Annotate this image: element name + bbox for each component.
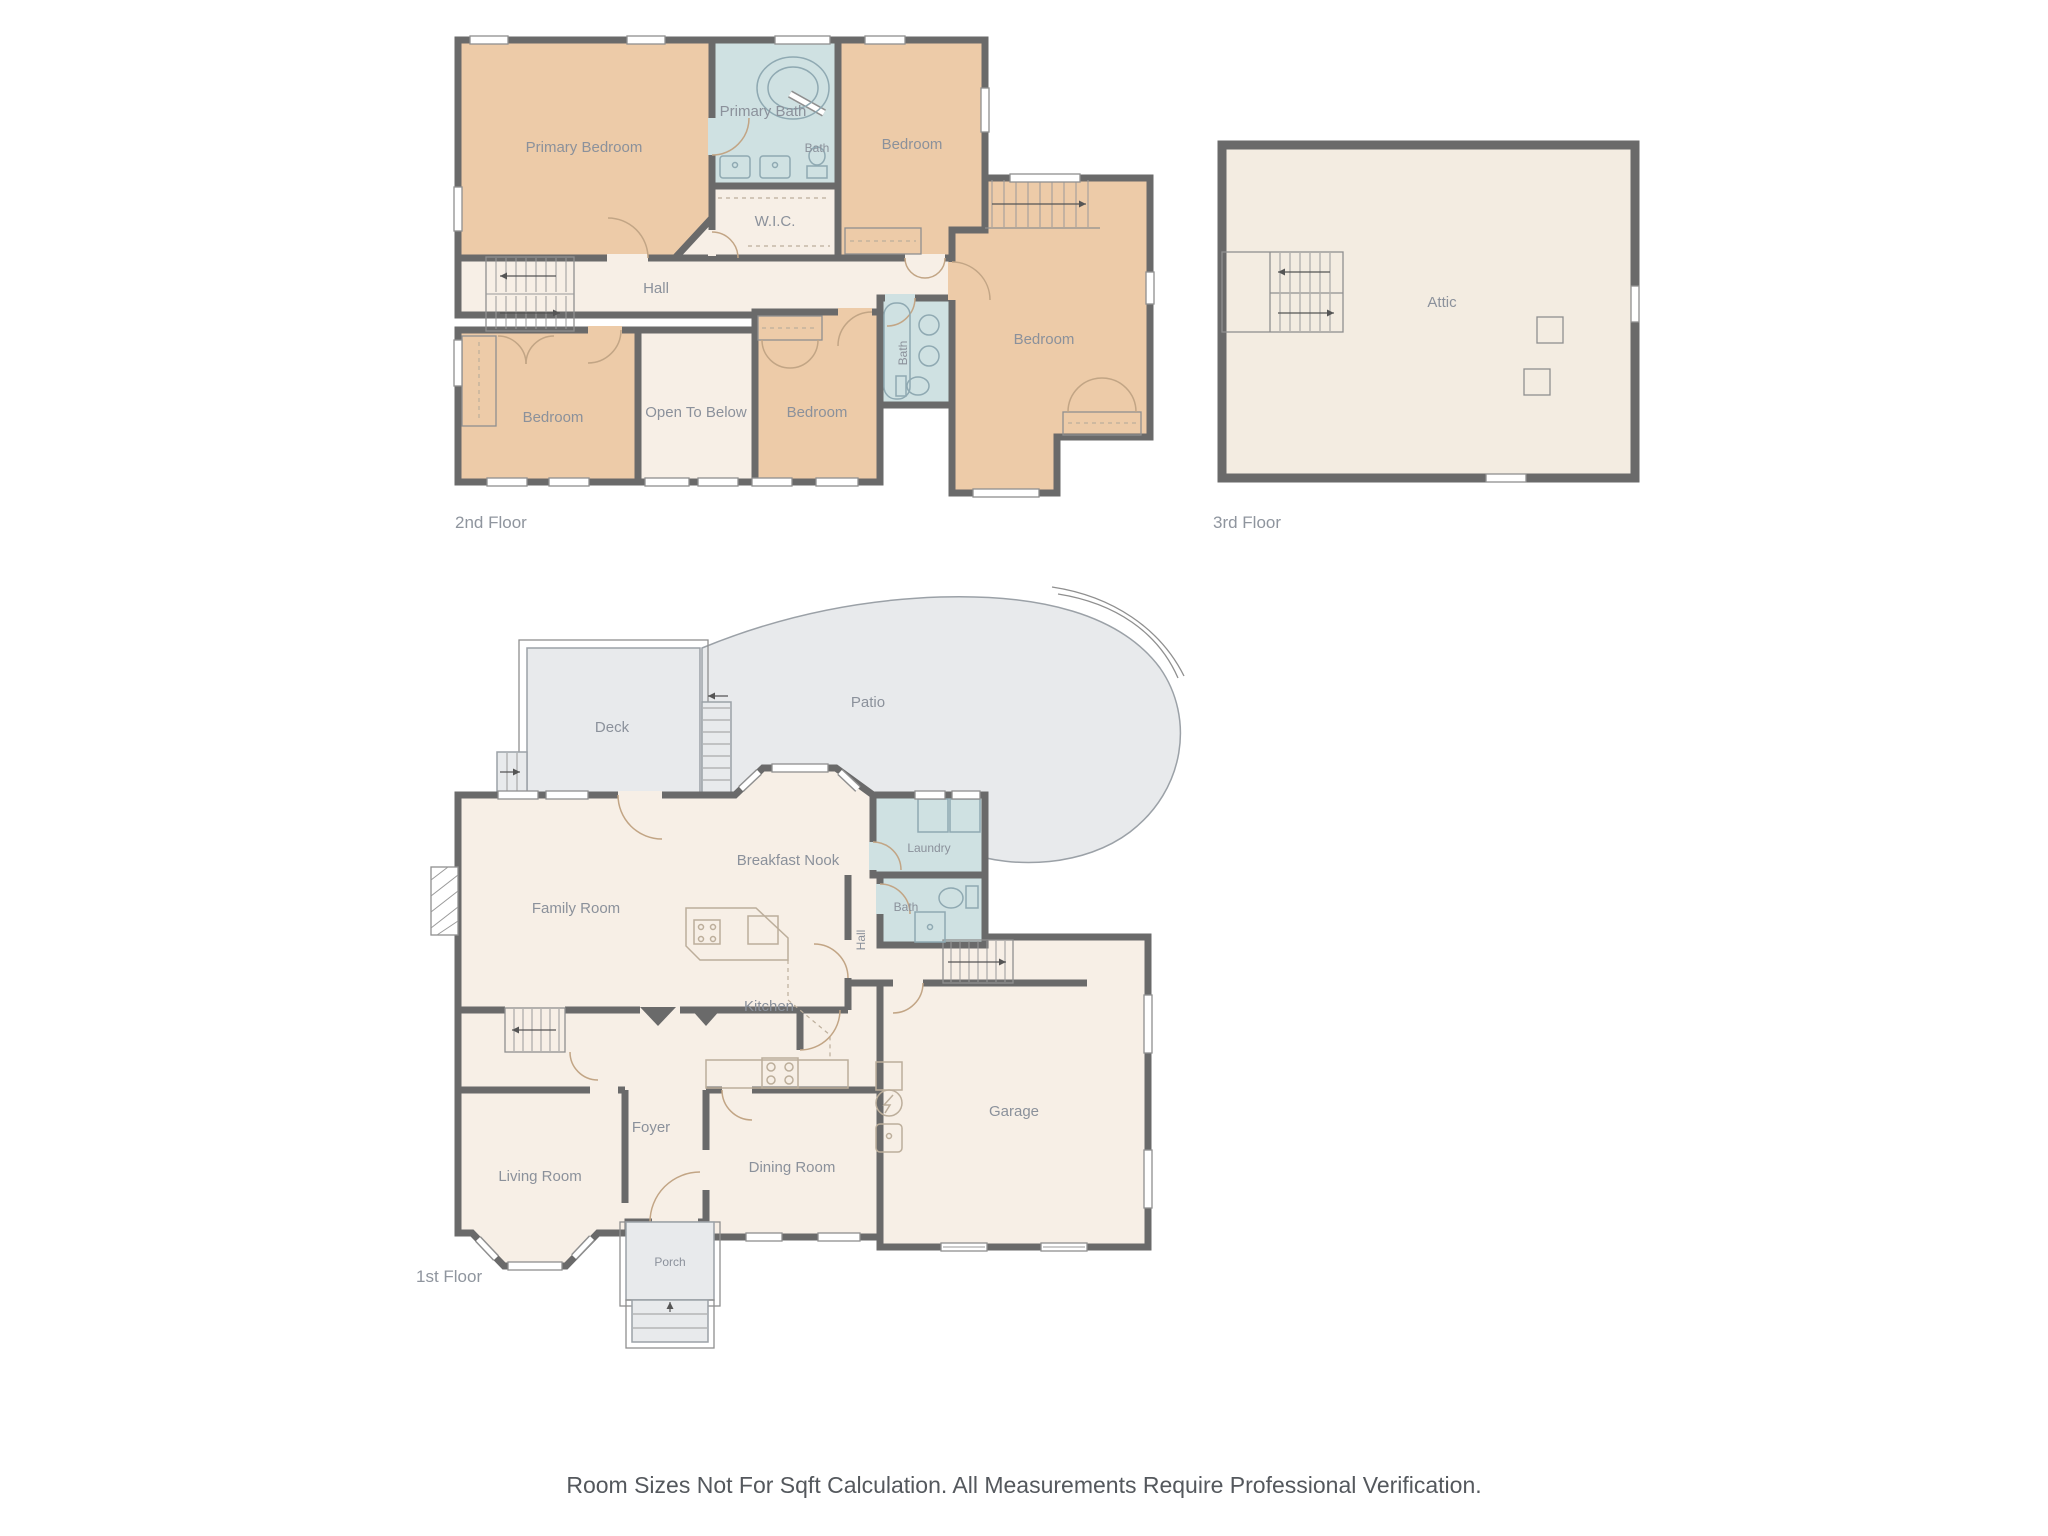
- room-label-patio: Patio: [851, 694, 885, 711]
- room-label-bath2: Bath: [896, 341, 910, 366]
- floor-label-3rd: 3rd Floor: [1213, 513, 1281, 532]
- room-label-bedroom-s: Bedroom: [787, 404, 848, 421]
- room-label-hall1: Hall: [854, 930, 868, 951]
- room-label-breakfast-nook: Breakfast Nook: [737, 852, 840, 869]
- room-label-bedroom-ne: Bedroom: [882, 136, 943, 153]
- floor-plan-3rd: Attic 3rd Floor: [1205, 135, 1650, 540]
- room-label-deck: Deck: [595, 719, 630, 736]
- room-label-kitchen: Kitchen: [744, 998, 794, 1015]
- room-label-bedroom-e: Bedroom: [1014, 331, 1075, 348]
- room-label-bath1: Bath: [894, 900, 919, 914]
- attic-room: [1222, 145, 1635, 478]
- room-label-dining-room: Dining Room: [749, 1159, 836, 1176]
- room-label-foyer: Foyer: [632, 1119, 670, 1136]
- room-label-family-room: Family Room: [532, 900, 620, 917]
- room-label-bedroom-sw: Bedroom: [523, 409, 584, 426]
- room-label-bath-small: Bath: [805, 141, 830, 155]
- room-label-hall: Hall: [643, 280, 669, 297]
- room-label-open-below: Open To Below: [645, 404, 747, 421]
- floor-label-1st: 1st Floor: [416, 1267, 482, 1286]
- room-label-wic: W.I.C.: [755, 213, 796, 230]
- room-label-porch: Porch: [654, 1255, 685, 1269]
- disclaimer-text: Room Sizes Not For Sqft Calculation. All…: [0, 1472, 2048, 1499]
- fireplace: [431, 867, 458, 935]
- room-label-attic: Attic: [1427, 294, 1457, 311]
- room-label-laundry: Laundry: [907, 841, 950, 855]
- floor-label-2nd: 2nd Floor: [455, 513, 527, 532]
- room-label-primary-bath: Primary Bath: [720, 103, 807, 120]
- room-label-garage: Garage: [989, 1103, 1039, 1120]
- floor-plan-1st: Deck Patio Breakfast Nook Laundry Bath H…: [415, 583, 1205, 1358]
- deck: [497, 640, 731, 795]
- floor-plan-2nd: Primary Bedroom Primary Bath Bath W.I.C.…: [448, 26, 1160, 546]
- porch: [620, 1222, 720, 1348]
- room-label-primary-bedroom: Primary Bedroom: [526, 139, 643, 156]
- room-label-living-room: Living Room: [498, 1168, 581, 1185]
